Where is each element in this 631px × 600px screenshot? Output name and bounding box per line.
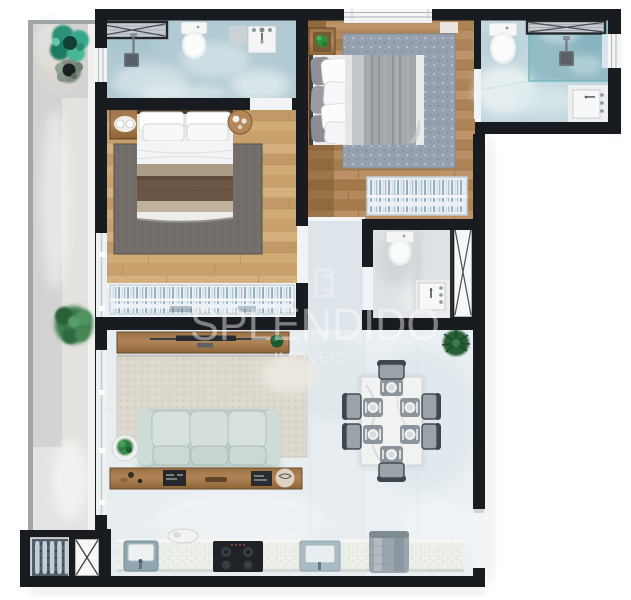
svg-text:SPLENDIDO: SPLENDIDO <box>190 299 440 350</box>
svg-text:IMÓVEIS: IMÓVEIS <box>274 349 347 366</box>
